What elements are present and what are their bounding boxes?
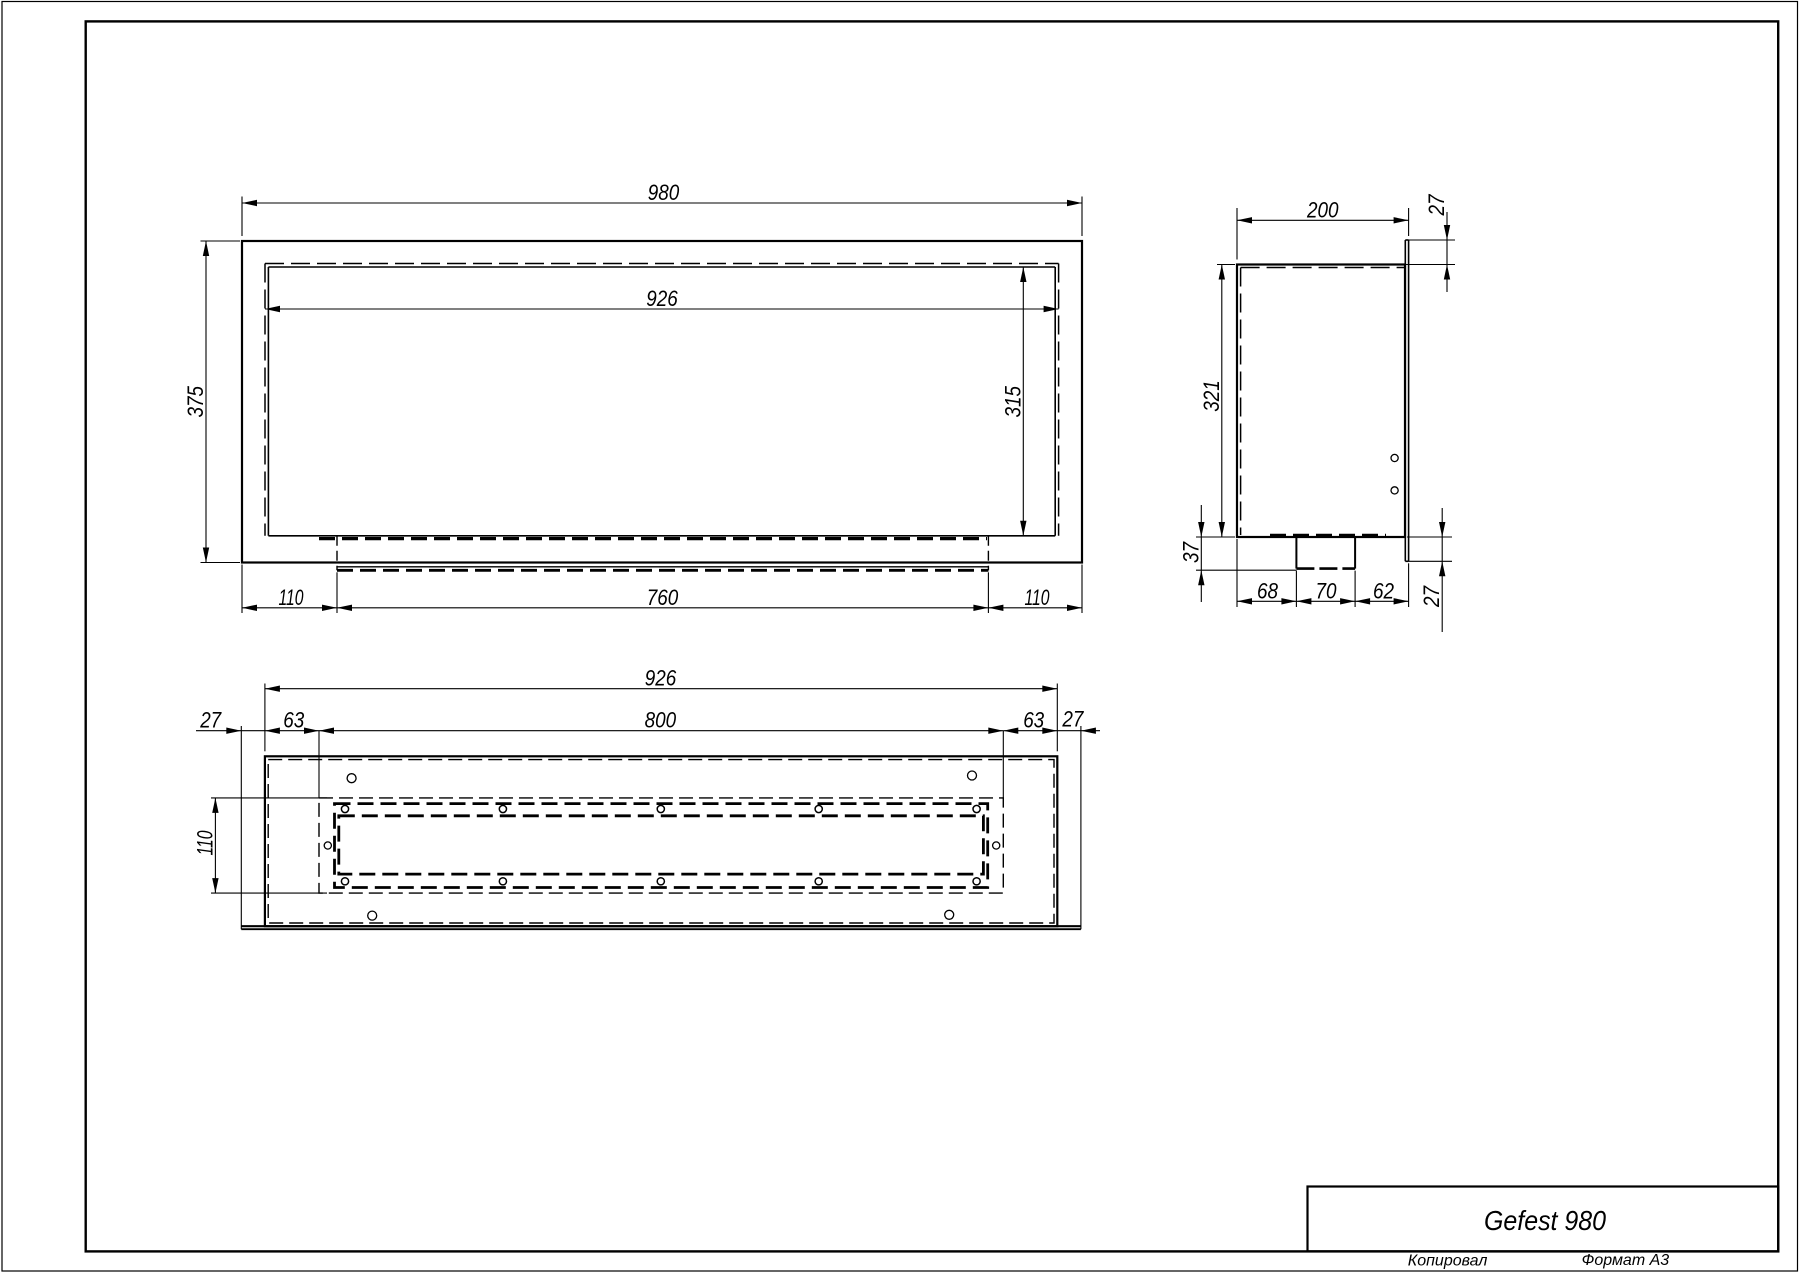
- svg-text:760: 760: [647, 585, 679, 610]
- svg-text:62: 62: [1373, 578, 1394, 603]
- svg-text:27: 27: [1419, 585, 1444, 608]
- svg-text:315: 315: [1000, 385, 1025, 417]
- svg-text:Gefest 980: Gefest 980: [1484, 1205, 1606, 1236]
- svg-text:980: 980: [648, 180, 680, 205]
- svg-text:63: 63: [1023, 708, 1045, 733]
- svg-text:110: 110: [279, 585, 305, 610]
- svg-text:200: 200: [1306, 197, 1339, 222]
- svg-text:Копировал: Копировал: [1408, 1253, 1488, 1270]
- svg-text:27: 27: [1062, 707, 1085, 732]
- svg-text:27: 27: [199, 708, 222, 733]
- svg-text:Формат А3: Формат А3: [1582, 1252, 1670, 1269]
- svg-text:63: 63: [283, 708, 305, 733]
- svg-text:37: 37: [1178, 541, 1203, 563]
- svg-text:70: 70: [1316, 578, 1338, 603]
- svg-text:110: 110: [192, 830, 217, 856]
- svg-text:375: 375: [183, 385, 208, 417]
- svg-text:27: 27: [1424, 194, 1449, 217]
- svg-text:321: 321: [1199, 380, 1224, 412]
- svg-text:110: 110: [1025, 585, 1051, 610]
- svg-text:68: 68: [1257, 578, 1279, 603]
- svg-text:926: 926: [646, 286, 678, 311]
- svg-text:800: 800: [645, 708, 677, 733]
- svg-text:926: 926: [645, 666, 677, 691]
